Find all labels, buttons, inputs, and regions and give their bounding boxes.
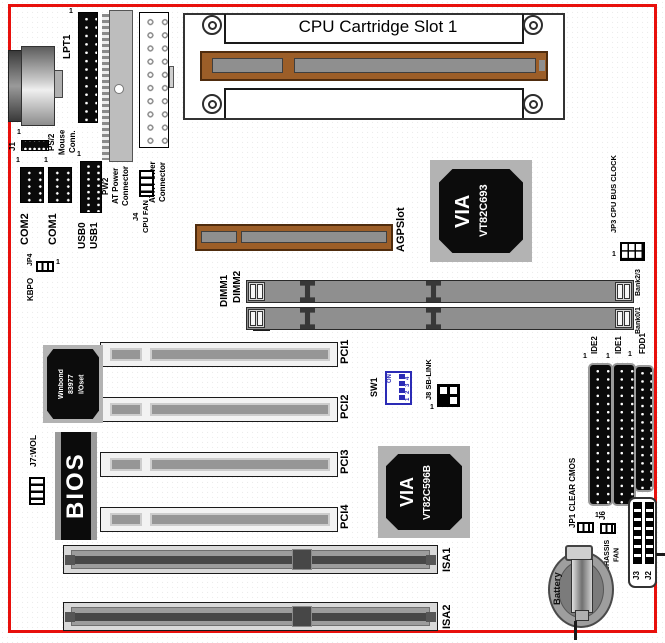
com1-header — [48, 167, 72, 203]
cpu-slot-key-segment — [212, 58, 283, 73]
j8-pin1-marker: 1 — [430, 404, 434, 411]
battery-clip-foot — [575, 610, 589, 621]
usb-header — [80, 161, 102, 213]
ide1-connector — [612, 363, 636, 506]
sw1-numbers: 1 2 3 4 — [405, 374, 412, 402]
j8-pin-cell — [450, 387, 457, 394]
fdd1-pin1-marker: 1 — [628, 351, 632, 358]
sw1-toggle — [395, 388, 405, 393]
jp4-jumper — [36, 261, 54, 272]
j7-jumper — [29, 477, 45, 505]
j1-pin1-marker: 1 — [17, 129, 21, 136]
ps2-port-flange — [8, 50, 22, 122]
j7-label: J7:WOL — [28, 426, 40, 476]
isa1-end-tab — [65, 555, 75, 565]
ide1-pin1-marker: 1 — [606, 353, 610, 360]
battery-tick-mark — [574, 621, 577, 640]
kbpo-label: KBPO — [26, 273, 37, 305]
pci1-label: PCI1 — [339, 337, 352, 367]
pw2-keyhole — [114, 84, 124, 94]
pci4-slot-main-segment — [150, 513, 330, 526]
dimm1-latch-cell — [624, 311, 630, 326]
battery-label: Battery — [552, 557, 565, 621]
j3-label: J3 — [632, 567, 642, 584]
j1-label: J1 — [8, 140, 18, 154]
j4-fan-header — [139, 170, 154, 197]
cpu-mount-hole-inner — [529, 100, 538, 109]
north-bridge-brand: VIA — [451, 188, 475, 234]
ps2-port-tab — [54, 70, 63, 98]
j8-label: J8 SB-LINK — [424, 352, 436, 408]
bank23-label: Bank2/3 — [635, 264, 646, 302]
j6-label: J6 — [598, 508, 609, 524]
jp3-pin1-marker: 1 — [612, 251, 616, 258]
bios-label: BIOS — [62, 436, 90, 536]
sw1-toggle — [395, 381, 405, 386]
cpu-mount-hole-inner — [529, 21, 538, 30]
lpt1-pin1-marker: 1 — [69, 8, 73, 15]
isa1-key-block — [292, 549, 312, 570]
com2-pin1-marker: 1 — [16, 157, 20, 164]
j2-pin-column — [645, 502, 654, 564]
jp4-pin1-marker: 1 — [56, 259, 60, 266]
agp-label: AGPSlot — [395, 202, 409, 258]
sw1-toggle — [395, 374, 405, 379]
j8-pin-cell — [450, 397, 457, 404]
dimm2-latch-cell — [617, 284, 623, 299]
north-bridge-model: VT82C693 — [478, 172, 492, 250]
cpu-bracket-line-bottom — [226, 88, 522, 90]
cpu-slot-main-segment — [294, 58, 536, 73]
cpu-bracket-edge-tl — [224, 14, 226, 44]
motherboard-diagram: PS/2 Mouse Conn. 1 J1 1 LPT1 PW2 AT Powe… — [0, 0, 665, 643]
usb-pin1-marker: 1 — [77, 151, 81, 158]
fdd1-connector — [634, 365, 654, 492]
com1-label: COM1 — [47, 207, 60, 251]
pw1-connector-body — [139, 12, 169, 148]
sw1-toggle — [395, 395, 405, 400]
jp3-label: JP3 CPU BUS CLOCK — [609, 150, 621, 238]
agp-slot-key-segment — [201, 231, 237, 243]
ide2-label: IDE2 — [590, 332, 601, 359]
pci3-slot-main-segment — [150, 458, 330, 471]
pw2-label: PW2 AT Power Connector — [101, 160, 133, 212]
pci2-label: PCI2 — [339, 392, 352, 422]
ide2-pin1-marker: 1 — [583, 353, 587, 360]
sw1-label: SW1 — [369, 372, 381, 402]
pci2-slot-key-segment — [110, 403, 142, 416]
dimm2-latch-cell — [257, 284, 263, 299]
lpt1-header — [78, 12, 98, 123]
isa2-slot-stripe — [72, 613, 429, 621]
cpu-slot-end-notch — [539, 60, 545, 71]
super-io-text: Winbond 83977 I/Oset — [57, 352, 89, 416]
pci4-slot-key-segment — [110, 513, 142, 526]
pci2-slot-main-segment — [150, 403, 330, 416]
pci3-slot-key-segment — [110, 458, 142, 471]
dimm2-label: DIMM2 — [232, 262, 245, 312]
battery-clip-bar — [571, 559, 593, 613]
usb0-label: USB0 — [77, 216, 89, 256]
dimm2-latch-cell — [624, 284, 630, 299]
j3-pin-column — [633, 502, 642, 564]
isa1-slot-stripe — [72, 556, 429, 564]
ps2-port-barrel — [21, 46, 55, 126]
pci1-slot-main-segment — [150, 348, 330, 361]
dimm2-latch-cell — [250, 284, 256, 299]
isa2-end-tab — [65, 612, 75, 622]
com2-header — [20, 167, 44, 203]
agp-slot-main-segment — [241, 231, 387, 243]
isa2-end-tab — [426, 612, 436, 622]
isa2-label: ISA2 — [441, 600, 455, 633]
usb1-label: USB1 — [89, 216, 101, 256]
lpt1-label: LPT1 — [62, 24, 74, 70]
pci1-slot-key-segment — [110, 348, 142, 361]
south-bridge-brand: VIA — [397, 471, 419, 513]
sw1-on-label: ON — [387, 373, 394, 385]
j3-j2-tick-mark — [656, 553, 665, 556]
ps2-label: PS/2 Mouse Conn. — [47, 118, 77, 166]
cpu-mount-hole-inner — [208, 100, 217, 109]
dimm1-latch-cell — [250, 311, 256, 326]
isa1-label: ISA1 — [441, 543, 455, 576]
pw1-latch-tab — [169, 66, 174, 88]
j8-pin-cell — [440, 387, 447, 394]
dimm1-latch-cell — [257, 311, 263, 326]
fdd1-label: FDD1 — [638, 330, 649, 357]
ide1-label: IDE1 — [614, 332, 625, 359]
com1-pin1-marker: 1 — [44, 157, 48, 164]
south-bridge-model: VT82C596B — [422, 457, 435, 527]
j1-header — [21, 140, 49, 151]
j2-label: J2 — [644, 567, 654, 584]
dimm1-latch-cell — [617, 311, 623, 326]
isa2-key-block — [292, 606, 312, 627]
pci3-label: PCI3 — [339, 447, 352, 477]
pci4-label: PCI4 — [339, 502, 352, 532]
dimm1-label: DIMM1 — [219, 266, 232, 316]
j4-label: J4 CPU FAN — [131, 199, 153, 235]
cpu-bracket-line-top — [226, 42, 522, 44]
cpu-mount-hole-inner — [208, 21, 217, 30]
cpu-bracket-edge-bl — [224, 88, 226, 118]
cpu-slot-title: CPU Cartridge Slot 1 — [233, 17, 523, 37]
bios-chip-band-right — [91, 432, 97, 540]
isa1-end-tab — [426, 555, 436, 565]
ide2-connector — [588, 363, 613, 506]
jp3-jumper-block — [620, 242, 645, 261]
com2-label: COM2 — [19, 207, 32, 251]
jp1-jumper — [577, 522, 594, 533]
